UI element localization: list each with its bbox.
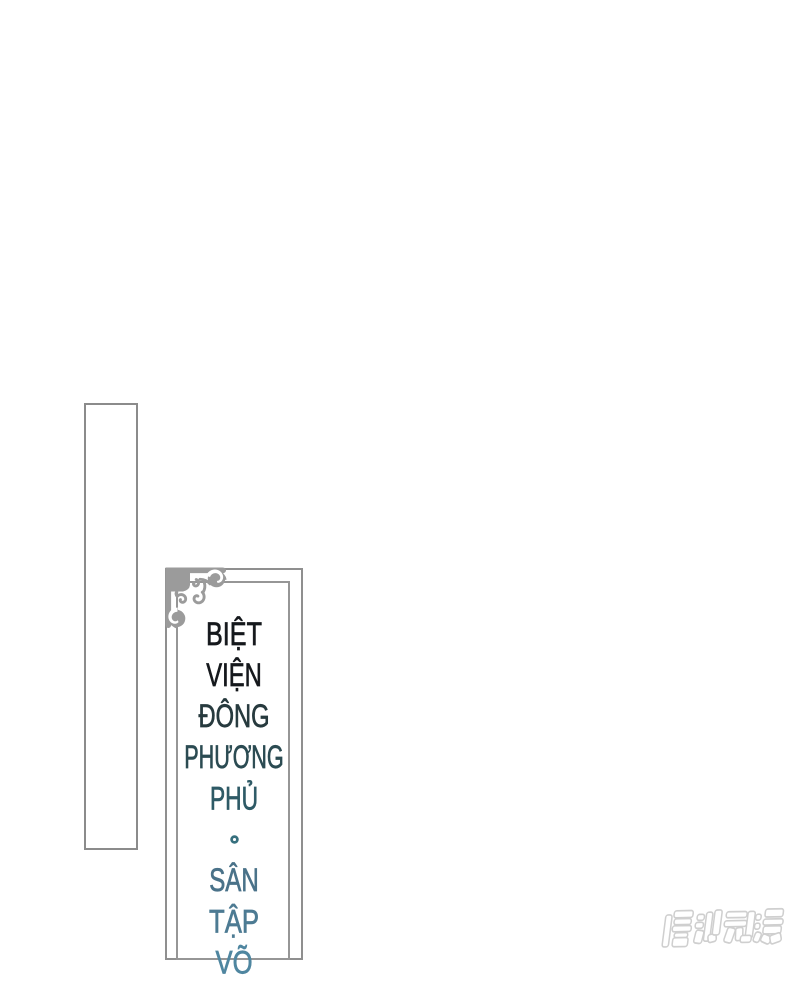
svg-text:VIỆN: VIỆN <box>206 657 262 693</box>
svg-text:PHỦ: PHỦ <box>210 781 258 817</box>
svg-text:ĐÔNG: ĐÔNG <box>199 698 270 734</box>
svg-text:SÂN: SÂN <box>209 862 259 898</box>
svg-text:TẬP: TẬP <box>209 904 259 940</box>
svg-text:PHƯƠNG: PHƯƠNG <box>184 739 284 775</box>
svg-text:BIỆT: BIỆT <box>206 616 262 652</box>
svg-text:VÕ: VÕ <box>216 945 253 981</box>
